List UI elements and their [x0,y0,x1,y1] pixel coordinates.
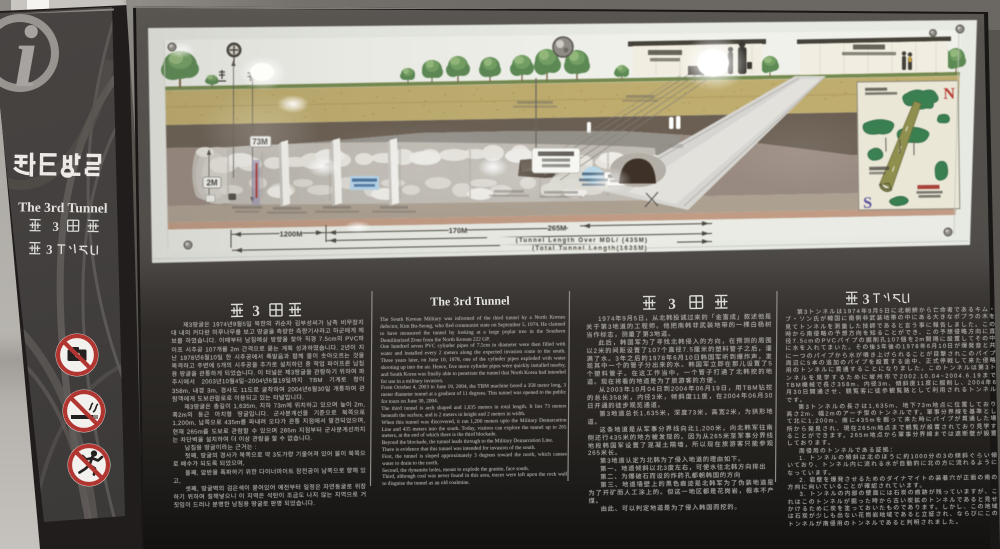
svg-text:3: 3 [862,293,869,308]
svg-text:3: 3 [252,304,260,320]
svg-text:3: 3 [668,297,676,313]
svg-text:The 3rd Tunnel: The 3rd Tunnel [430,293,510,308]
